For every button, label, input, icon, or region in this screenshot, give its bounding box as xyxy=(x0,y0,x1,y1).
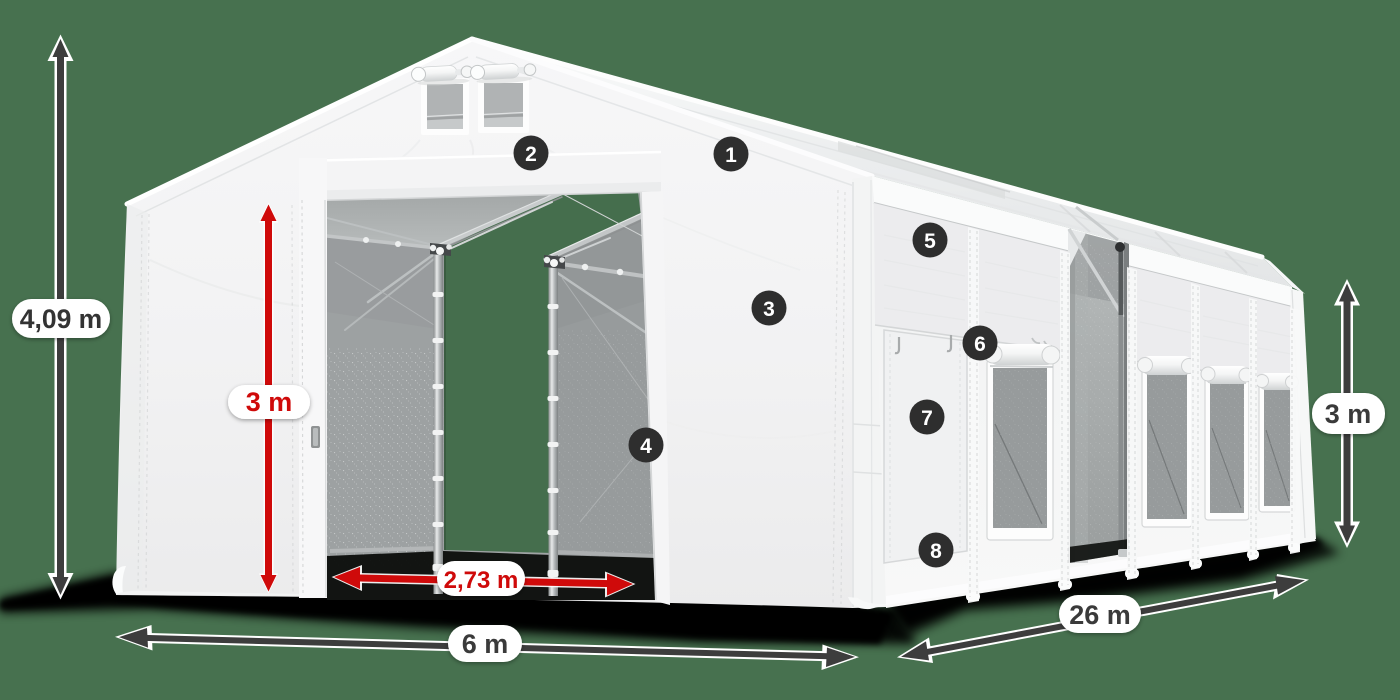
svg-text:3 m: 3 m xyxy=(1325,399,1372,429)
svg-text:1: 1 xyxy=(725,144,737,167)
svg-text:2: 2 xyxy=(525,143,537,166)
svg-text:4,09 m: 4,09 m xyxy=(20,304,103,334)
svg-text:3 m: 3 m xyxy=(246,387,293,417)
svg-text:6 m: 6 m xyxy=(462,629,509,659)
svg-text:3: 3 xyxy=(763,298,775,321)
svg-text:4: 4 xyxy=(640,435,652,458)
svg-text:6: 6 xyxy=(974,333,986,356)
svg-text:7: 7 xyxy=(921,407,933,430)
svg-text:2,73 m: 2,73 m xyxy=(444,567,519,594)
svg-text:5: 5 xyxy=(924,230,936,253)
svg-text:26 m: 26 m xyxy=(1069,600,1131,630)
svg-text:8: 8 xyxy=(930,540,942,563)
